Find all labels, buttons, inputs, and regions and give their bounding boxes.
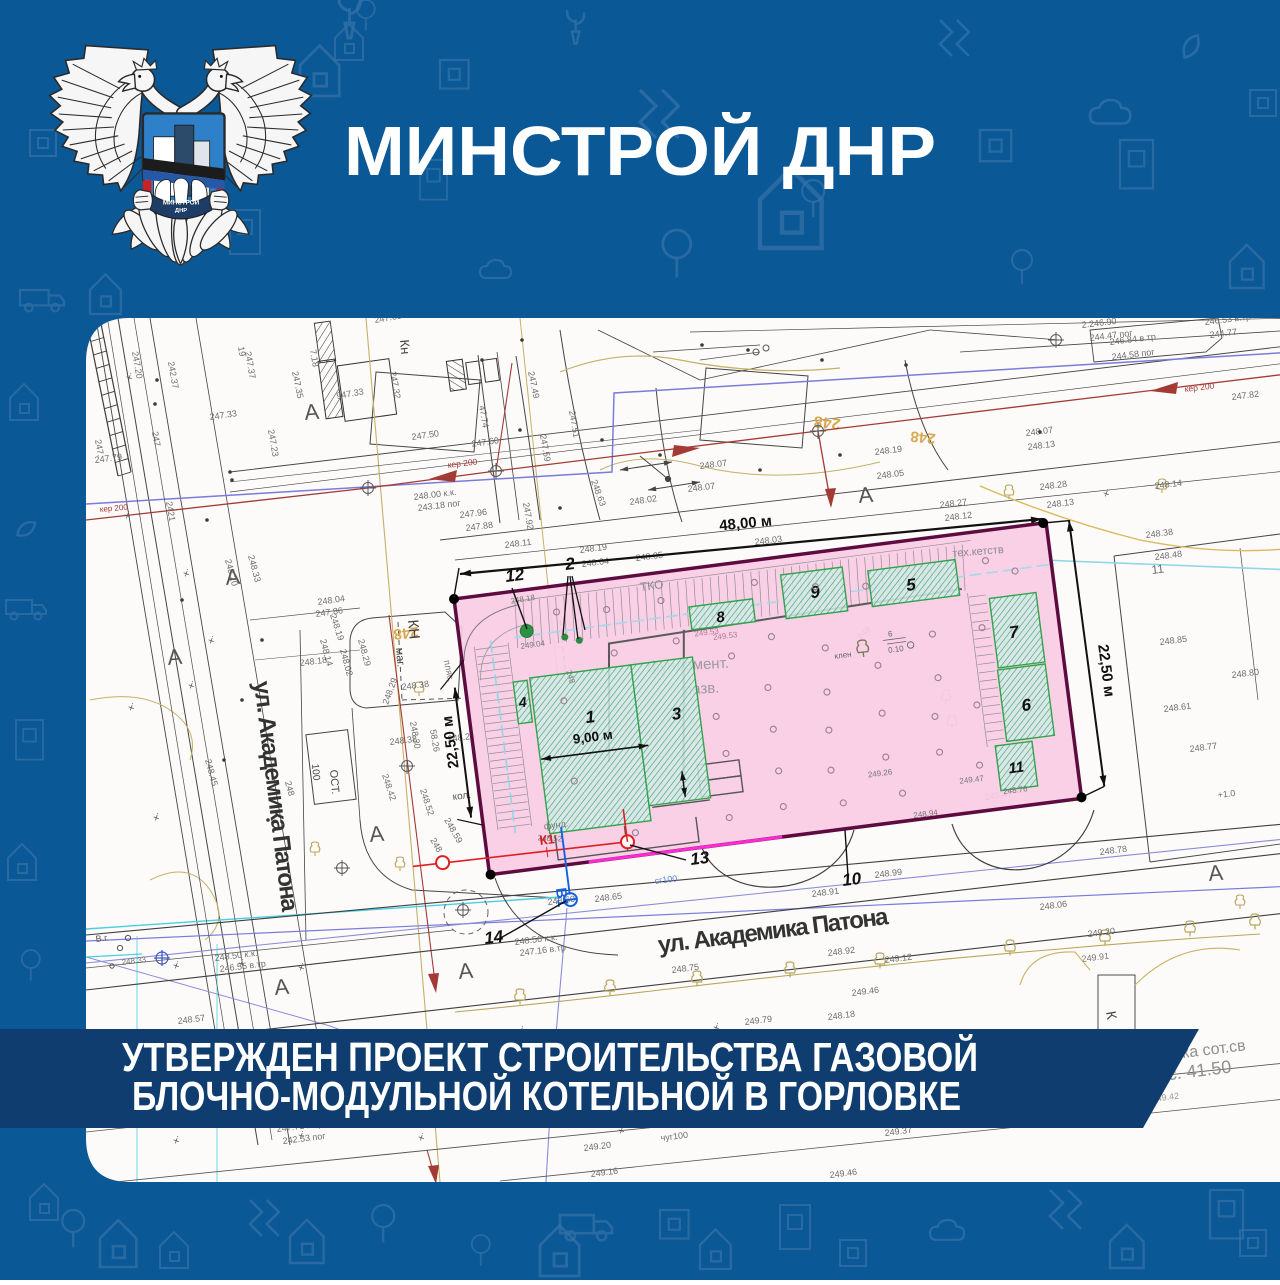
svg-text:А: А (457, 958, 474, 984)
svg-text:А: А (166, 644, 183, 670)
svg-text:БЛОЧНО-МОДУЛЬНОЙ КОТЕЛЬНОЙ В Г: БЛОЧНО-МОДУЛЬНОЙ КОТЕЛЬНОЙ В ГОРЛОВКЕ (132, 1073, 961, 1119)
svg-text:19: 19 (236, 346, 248, 358)
svg-text:11: 11 (1007, 759, 1025, 778)
svg-text:А: А (368, 821, 385, 847)
svg-text:А: А (273, 974, 290, 1000)
svg-text:ДНР: ДНР (175, 208, 187, 214)
svg-text:А: А (224, 564, 241, 590)
svg-text:А: А (857, 482, 874, 508)
svg-text:КН: КН (404, 619, 423, 640)
svg-text:248: 248 (910, 427, 937, 447)
svg-text:ТКО: ТКО (639, 577, 664, 594)
svg-text:В1: В1 (552, 887, 571, 908)
svg-text:10: 10 (841, 869, 863, 890)
svg-text:МИНСТРОЙ ДНР: МИНСТРОЙ ДНР (344, 111, 936, 190)
svg-text:ОСТ.: ОСТ. (327, 769, 341, 795)
svg-text:А: А (303, 399, 320, 425)
svg-text:МИНСТРОЙ: МИНСТРОЙ (163, 198, 200, 207)
svg-text:Кн: Кн (397, 339, 413, 355)
svg-text:маг.: маг. (393, 647, 407, 667)
svg-text:11: 11 (1151, 562, 1165, 577)
svg-text:12: 12 (504, 565, 526, 586)
svg-text:13: 13 (689, 848, 711, 869)
svg-text:К1: К1 (539, 831, 556, 848)
svg-text:100: 100 (309, 763, 321, 781)
svg-text:А: А (1207, 860, 1224, 886)
